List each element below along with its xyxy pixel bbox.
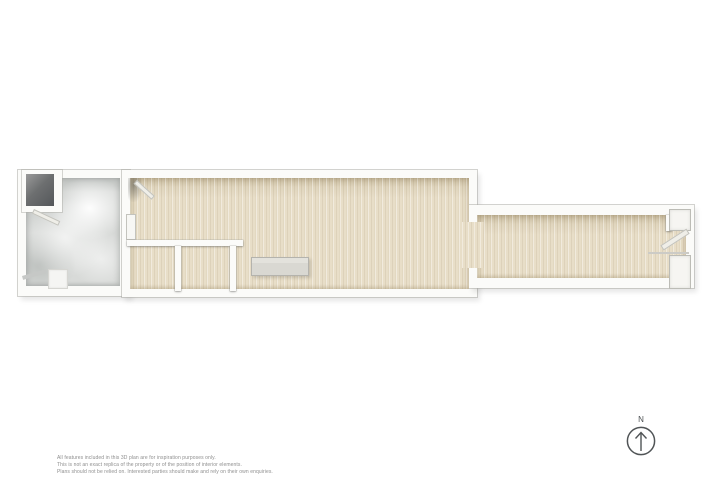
rear-cupboard-bottom: [669, 255, 691, 289]
compass-north-label: N: [619, 415, 663, 425]
floor-plan-page: N All features included in this 3D plan …: [0, 0, 712, 480]
compass-circle-arrow: [625, 425, 657, 457]
compass-north-icon: N: [619, 415, 663, 469]
partition-wall-top: [127, 240, 243, 246]
passage-floor: [462, 222, 484, 268]
rear-hall-floor: [477, 215, 686, 278]
disclaimer-line-2: This is not an exact replica of the prop…: [57, 462, 273, 469]
disclaimer-line-3: Plans should not be relied on. Intereste…: [57, 469, 273, 476]
partition-wall-stub-1: [175, 246, 181, 291]
kitchen-bench: [251, 257, 309, 276]
disclaimer-line-1: All features included in this 3D plan ar…: [57, 455, 273, 462]
partition-wall-stub-2: [230, 246, 236, 291]
rear-cupboard-top: [669, 209, 691, 231]
disclaimer-text: All features included in this 3D plan ar…: [57, 455, 273, 477]
storage-alcove-floor: [26, 174, 54, 206]
open-door-panel: [126, 214, 136, 240]
rear-shelf-ledge: [648, 252, 689, 254]
floor-mat: [48, 269, 68, 289]
